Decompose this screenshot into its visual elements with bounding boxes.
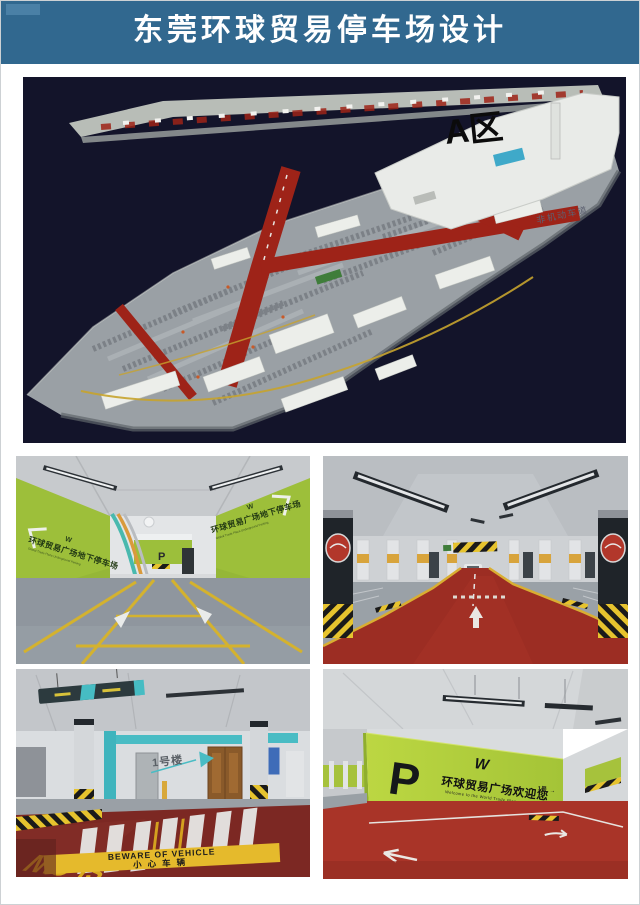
wheel-stop	[529, 815, 559, 821]
foreground-column-right	[598, 510, 628, 638]
teal-band	[116, 735, 242, 744]
render-entrance: P W 环球贸易广场地下停车场 Global Trade Plaza Under…	[16, 456, 310, 664]
globe-lamp	[144, 517, 154, 527]
render-crosswalk: 1号楼	[16, 669, 310, 877]
storage-area	[16, 747, 46, 797]
header-glint	[6, 4, 40, 15]
page-title: 东莞环球贸易停车场设计	[1, 1, 639, 64]
column-hazard-base	[598, 604, 628, 638]
master-plan-render: A区 非机动车道	[23, 77, 626, 443]
red-aisle-svg	[323, 456, 628, 664]
poster-page: 东莞环球贸易停车场设计	[0, 0, 640, 905]
white-door	[286, 751, 304, 797]
right-arrow-icon: →	[549, 788, 556, 795]
round-red-sign	[601, 534, 625, 562]
entrance-svg: P W 环球贸易广场地下停车场 Global Trade Plaza Under…	[16, 456, 310, 664]
column-hazard-base	[323, 604, 353, 638]
render-welcome-wall: P ↑ 1-2号 W 环球贸易广场欢迎您 Welcome to the Worl…	[323, 669, 628, 879]
round-red-sign	[326, 534, 350, 562]
yellow-bollard	[162, 781, 167, 801]
distant-columns	[329, 761, 362, 789]
master-plan-svg: A区 非机动车道	[23, 77, 626, 443]
p-sign: P	[158, 551, 165, 563]
hazard-sign-small	[152, 564, 170, 569]
crosswalk-svg: 1号楼	[16, 669, 310, 877]
render-red-aisle	[323, 456, 628, 664]
slab-column	[551, 103, 560, 159]
back-doorway	[182, 548, 194, 574]
foreground-column-left	[323, 510, 353, 638]
wooden-double-door	[208, 747, 242, 801]
blue-wall-sign	[268, 747, 280, 775]
teal-wall-stripe	[104, 731, 116, 803]
title-bar: 东莞环球贸易停车场设计	[1, 1, 639, 64]
welcome-wall-svg: P ↑ 1-2号 W 环球贸易广场欢迎您 Welcome to the Worl…	[323, 669, 628, 879]
zone-a-label: A区	[443, 108, 505, 152]
